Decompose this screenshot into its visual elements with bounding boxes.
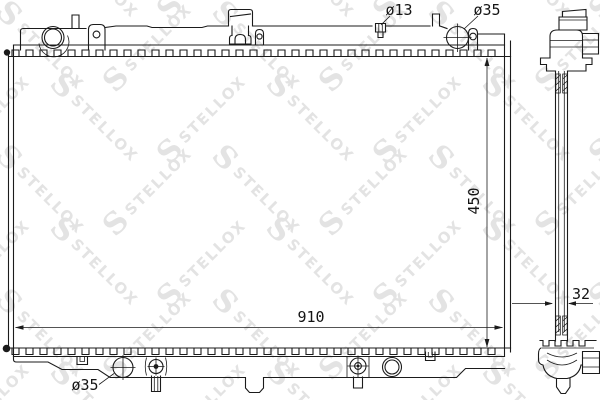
clip-bottom-left bbox=[77, 357, 88, 365]
radiator-technical-drawing: 910 450 ø13 ø35 ø35 bbox=[0, 0, 600, 400]
drain-opening bbox=[383, 358, 402, 377]
serration-top bbox=[9, 50, 511, 57]
label-depth-32: 32 bbox=[572, 285, 590, 303]
post-top-left bbox=[72, 15, 79, 28]
core-joints bbox=[3, 45, 511, 357]
vent-fitting-13 bbox=[376, 24, 386, 38]
bolt-fitting-left bbox=[145, 358, 167, 392]
outlet-opening-35 bbox=[111, 355, 136, 380]
joint-end-mark-bottom bbox=[3, 345, 11, 353]
filler-opening-35 bbox=[444, 24, 472, 53]
radiator-side-view: 32 bbox=[512, 10, 600, 394]
core-column bbox=[556, 71, 568, 341]
inlet-neck bbox=[550, 30, 599, 58]
drain-plug bbox=[557, 379, 571, 394]
radiator-cap bbox=[559, 10, 587, 31]
dimension-depth-32: 32 bbox=[512, 285, 593, 306]
label-dia13: ø13 bbox=[385, 1, 412, 19]
post-top-right bbox=[433, 14, 440, 26]
bracket-top-left bbox=[21, 29, 87, 51]
label-width-910: 910 bbox=[297, 308, 324, 326]
label-height-450: 450 bbox=[465, 187, 483, 214]
mount-plate-right bbox=[469, 29, 505, 51]
inlet-pipe bbox=[583, 34, 599, 55]
callout-dia35-bottom: ø35 bbox=[71, 374, 114, 395]
bolt-fitting-right bbox=[347, 356, 369, 389]
callout-dia35-top: ø35 bbox=[464, 1, 501, 29]
dimension-width-910: 910 bbox=[15, 308, 503, 330]
mount-plate-left bbox=[89, 25, 106, 51]
radiator-front-view: 910 450 ø13 ø35 ø35 bbox=[3, 1, 511, 394]
label-dia35-top: ø35 bbox=[473, 1, 500, 19]
side-plates bbox=[9, 35, 511, 357]
dimension-height-450: 450 bbox=[465, 58, 489, 348]
outlet-pipe bbox=[583, 352, 600, 374]
hatched-pins-top bbox=[556, 74, 567, 93]
mounting-ears bbox=[541, 58, 593, 71]
joint-end-mark-top bbox=[4, 49, 10, 55]
hatched-pins-bottom bbox=[556, 316, 567, 335]
callout-dia13-top: ø13 bbox=[381, 1, 413, 25]
side-bottom-tank bbox=[539, 341, 600, 394]
bracket-top-center bbox=[229, 10, 264, 46]
tank-top-edge bbox=[105, 26, 447, 29]
label-dia35-bottom: ø35 bbox=[71, 376, 98, 394]
